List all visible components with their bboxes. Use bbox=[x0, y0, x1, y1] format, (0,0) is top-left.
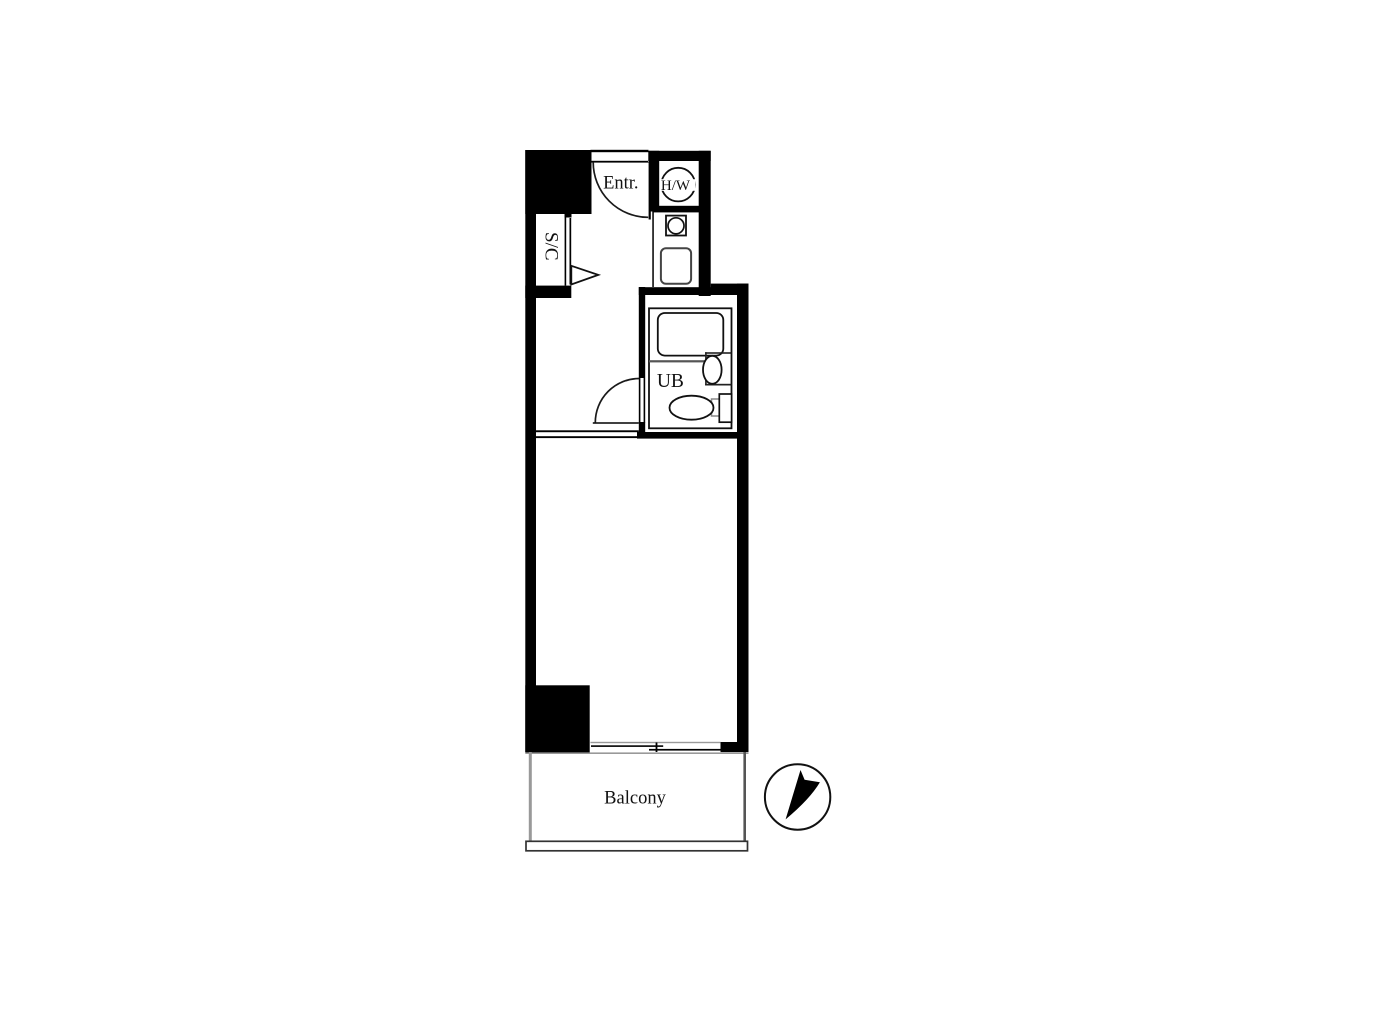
svg-text:S/C: S/C bbox=[540, 232, 561, 261]
svg-text:UB: UB bbox=[657, 371, 684, 392]
svg-text:Balcony: Balcony bbox=[604, 789, 666, 809]
svg-text:Entr.: Entr. bbox=[603, 173, 638, 193]
svg-text:H/W: H/W bbox=[661, 178, 691, 194]
